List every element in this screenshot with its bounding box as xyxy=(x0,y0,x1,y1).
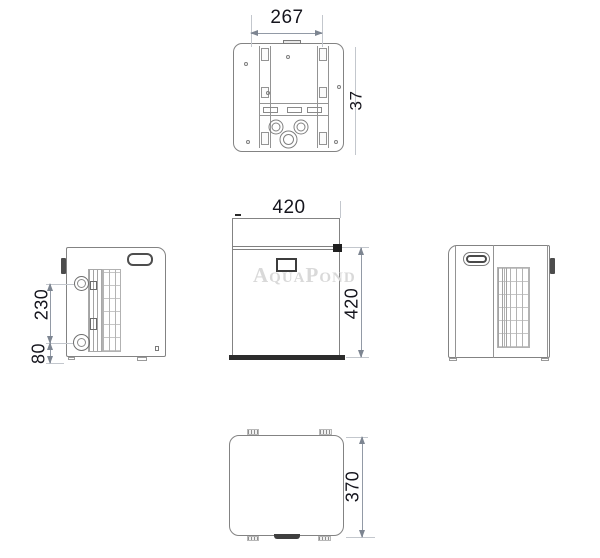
dimension-line xyxy=(251,33,322,34)
mount-tab xyxy=(247,536,259,541)
port-lower-inner xyxy=(77,338,86,347)
dim-label-bottom-depth: 370 xyxy=(344,467,363,507)
dim-label-top-depth: 37 xyxy=(347,81,366,121)
edge-line xyxy=(455,245,456,358)
mount-tab xyxy=(319,429,332,435)
dim-label-front-width: 420 xyxy=(265,198,313,217)
edge-line xyxy=(547,245,548,358)
foot xyxy=(449,358,457,361)
top-band xyxy=(232,246,340,250)
foot xyxy=(541,358,549,361)
hinge-tab xyxy=(550,258,555,274)
screw-dot xyxy=(337,85,341,89)
drain-tab xyxy=(274,534,300,539)
base-bar xyxy=(229,355,345,360)
extension-line xyxy=(342,247,369,248)
dim-label-top-width: 267 xyxy=(263,8,311,27)
watermark-logo: AquaPond xyxy=(253,263,356,288)
mount-tab xyxy=(247,429,259,435)
rail-clip xyxy=(319,87,327,98)
piping-panel xyxy=(102,269,121,352)
valve-block xyxy=(90,318,97,330)
front-view-body xyxy=(232,218,340,359)
port-circles xyxy=(258,110,320,154)
rail-clip xyxy=(261,48,269,61)
screw-dot xyxy=(244,62,248,66)
port-upper-inner xyxy=(77,279,86,288)
rail-clip xyxy=(319,132,327,145)
hinge-tab xyxy=(61,258,66,274)
handle-inner xyxy=(466,255,487,263)
handle-recess xyxy=(127,253,153,266)
extension-line xyxy=(340,201,341,218)
screw-dot xyxy=(286,55,290,59)
rail-clip xyxy=(319,48,327,61)
control-display xyxy=(276,258,297,272)
valve-block xyxy=(90,281,97,290)
mount-tab xyxy=(318,536,331,541)
dim-label-front-height: 420 xyxy=(343,284,362,324)
bottom-view-body xyxy=(229,435,344,536)
dim-label-port-spacing: 230 xyxy=(33,285,52,325)
screw-dot xyxy=(266,91,270,95)
screw-dot xyxy=(246,140,250,144)
top-cover-tab xyxy=(283,40,301,44)
foot xyxy=(68,357,75,360)
exchanger-panel xyxy=(498,268,507,347)
panel-divider xyxy=(493,245,494,358)
foot xyxy=(137,357,147,361)
drain-mark xyxy=(155,346,159,351)
dim-label-port-offset: 80 xyxy=(30,334,49,374)
screw-dot xyxy=(334,140,338,144)
corner-block xyxy=(333,244,342,252)
dimension-line xyxy=(50,343,51,363)
dimension-tick xyxy=(235,214,241,216)
technical-drawing-canvas: 267 37 AquaPond 420 420 xyxy=(0,0,600,558)
